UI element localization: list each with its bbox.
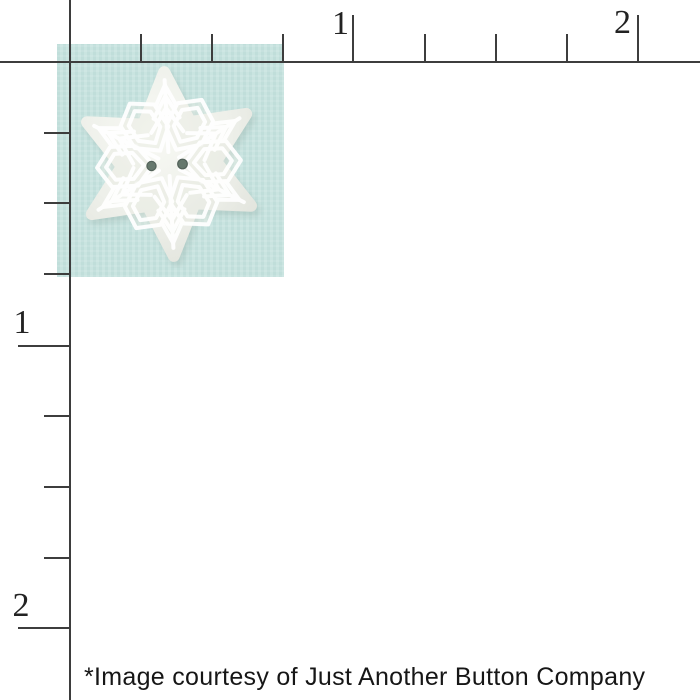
ruler-label-left-2: 2 [7,589,35,623]
ruler-tick [282,34,284,62]
ruler-tick-major [637,15,639,62]
ruler-tick [44,202,70,204]
ruler-tick [566,34,568,62]
ruler-tick [44,415,70,417]
ruler-tick-major [352,15,354,62]
ruler-tick [44,273,70,275]
ruler-tick [495,34,497,62]
ruler-tick [211,34,213,62]
ruler-tick [44,132,70,134]
image-courtesy-caption: *Image courtesy of Just Another Button C… [84,664,645,692]
ruler-tick-major [18,627,70,629]
ruler-line-vertical [69,0,71,700]
ruler-label-left-1: 1 [9,306,35,340]
snowflake-button-image [69,60,269,268]
ruler-line-horizontal [0,61,700,63]
ruler-label-top-2: 2 [601,6,631,40]
product-measurement-photo: 1 2 1 2 *Image courtesy of Just Another … [0,0,700,700]
ruler-tick-major [18,345,70,347]
ruler-tick [140,34,142,62]
ruler-tick [44,486,70,488]
ruler-tick [424,34,426,62]
ruler-label-top-1: 1 [325,7,349,41]
ruler-tick [44,557,70,559]
